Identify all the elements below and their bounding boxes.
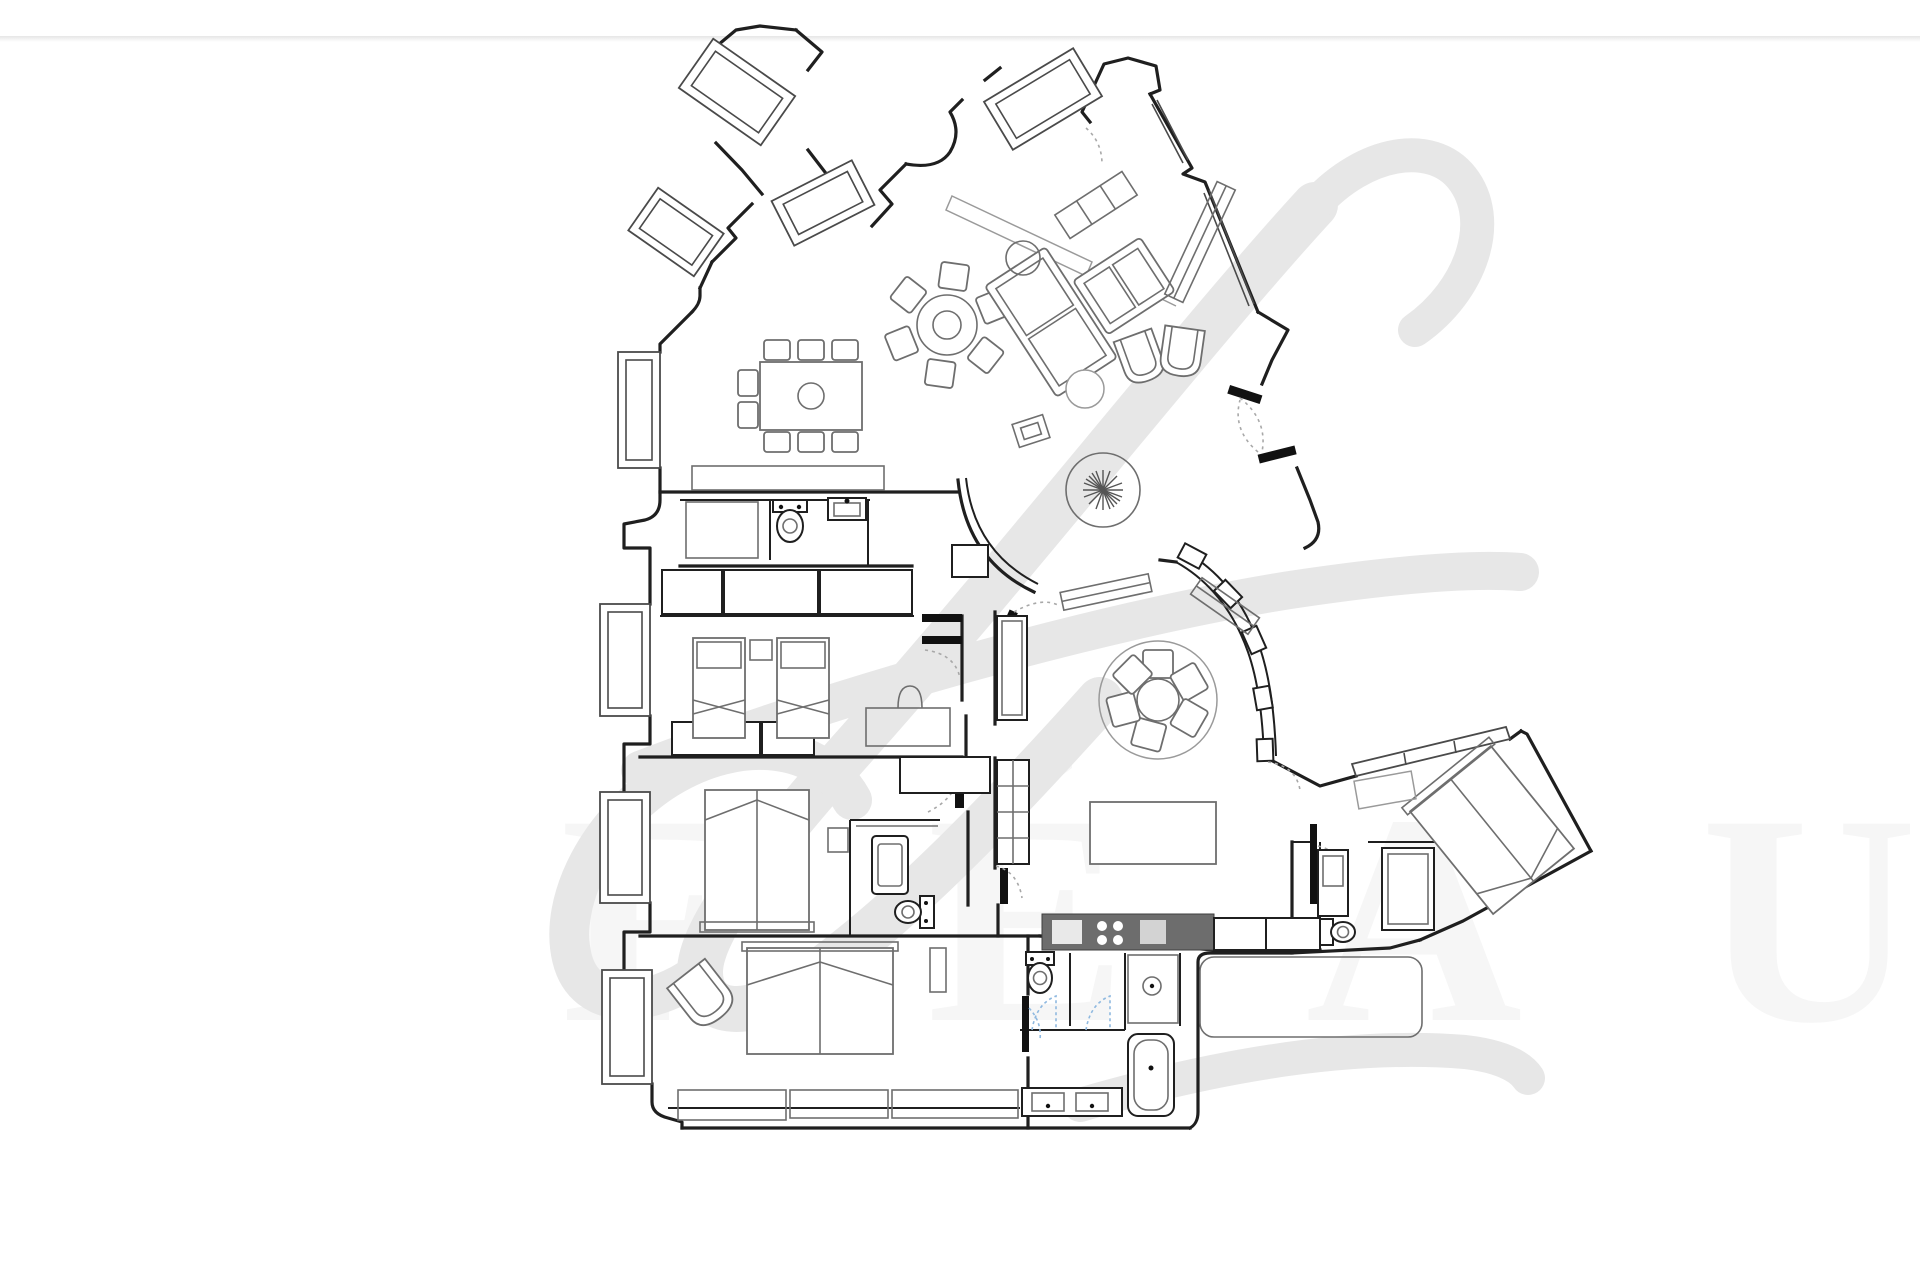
- glass-cabinet: [997, 760, 1029, 864]
- double-bed: [742, 942, 898, 1054]
- double-vanity: [1022, 1088, 1122, 1116]
- door-leaf: [1227, 385, 1262, 404]
- wardrobe: [820, 570, 912, 614]
- round-pedestal-table: [917, 295, 977, 355]
- radiator: [790, 1090, 888, 1118]
- bay-window: [600, 792, 650, 903]
- kitchen-counter: [1042, 914, 1320, 950]
- door-leaf: [1022, 996, 1029, 1052]
- sideboard: [692, 466, 884, 490]
- wardrobe: [662, 570, 722, 614]
- dining-table: [760, 362, 862, 430]
- twin-bed: [777, 638, 829, 738]
- door-leaf: [922, 636, 962, 644]
- dining-nook: [1099, 641, 1217, 759]
- floorplan-drawing: F É A U: [0, 0, 1920, 1280]
- wardrobe: [900, 757, 990, 793]
- nook-chairs: [1106, 650, 1209, 752]
- shower: [1382, 848, 1434, 930]
- toilet: [1320, 919, 1355, 945]
- radiator: [892, 1090, 1018, 1118]
- bay-window: [600, 604, 650, 716]
- door-leaf: [1258, 446, 1297, 464]
- floorplan-page: F É A U: [0, 0, 1920, 1280]
- round-dining-nook-table: [1137, 679, 1179, 721]
- twin-bed: [693, 638, 745, 738]
- wardrobe: [724, 570, 818, 614]
- bay-window: [984, 48, 1102, 150]
- nightstand: [750, 640, 772, 660]
- double-bed: [700, 790, 814, 932]
- tub-armchair: [1159, 325, 1205, 378]
- closet: [686, 502, 758, 558]
- radiating-chairs: [884, 262, 1009, 389]
- kitchen-island: [1090, 802, 1216, 864]
- door-leaf: [1310, 824, 1317, 904]
- round-table-group: [884, 262, 1009, 389]
- door-leaf: [922, 614, 962, 622]
- bay-window: [628, 188, 723, 276]
- bay-window: [618, 352, 660, 468]
- bay-window: [679, 39, 795, 146]
- radiator: [678, 1090, 786, 1120]
- stool: [1012, 415, 1050, 448]
- toilet: [1026, 952, 1054, 993]
- bathroom-top: [686, 498, 866, 558]
- entry-pier: [952, 545, 988, 577]
- toilet: [773, 500, 807, 542]
- washbasin: [828, 498, 866, 520]
- dining-room: [692, 340, 884, 490]
- door-leaf: [1000, 868, 1008, 904]
- console-table: [1055, 171, 1137, 238]
- side-table: [1066, 370, 1104, 408]
- bathtub: [1128, 1034, 1174, 1116]
- bay-windows-top: [628, 39, 1102, 276]
- bay-window: [772, 160, 875, 245]
- bay-window: [602, 970, 652, 1084]
